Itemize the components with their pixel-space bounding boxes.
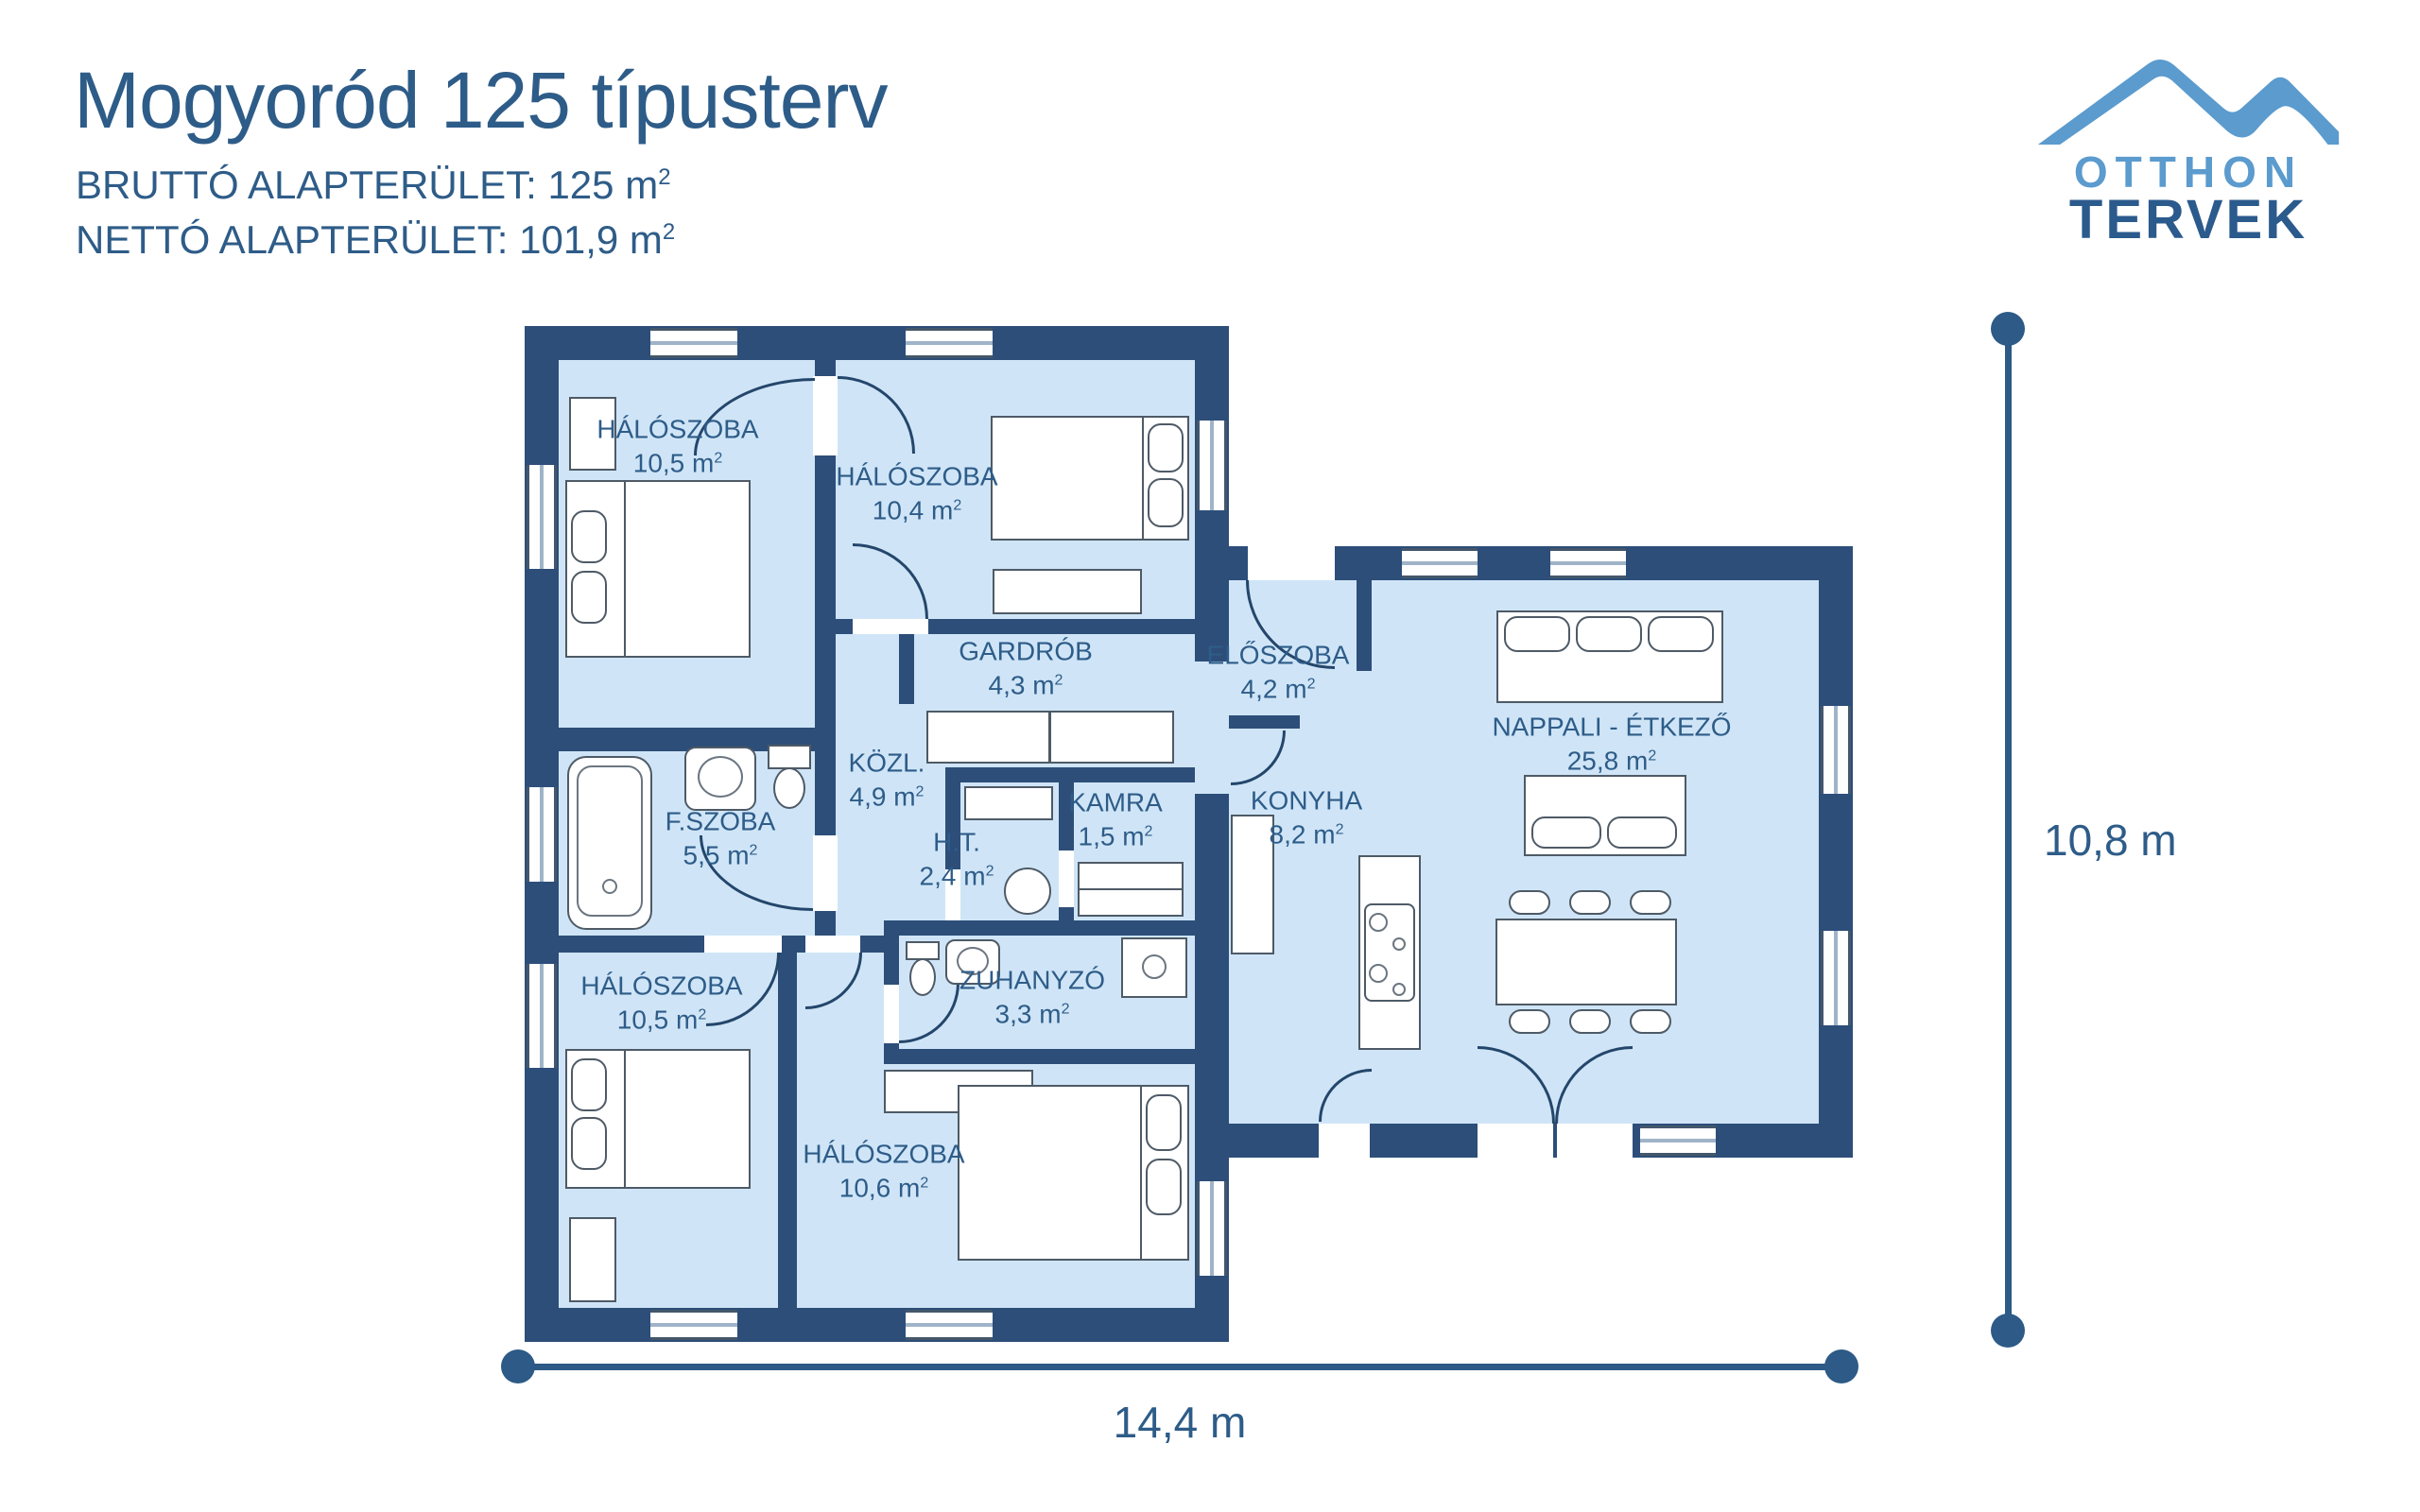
door-opening xyxy=(813,376,838,455)
height-dimension-line xyxy=(2005,329,2012,1331)
exterior-wall xyxy=(1195,794,1229,1124)
toilet-tank xyxy=(906,941,940,960)
dimension-endpoint xyxy=(1991,312,2025,346)
chair xyxy=(1630,1009,1671,1034)
burner xyxy=(1392,983,1406,996)
window xyxy=(1197,421,1227,510)
interior-wall xyxy=(778,953,797,1308)
water-heater xyxy=(1004,868,1051,915)
width-dimension-line xyxy=(518,1364,1841,1370)
height-dimension-label: 10,8 m xyxy=(2044,815,2177,866)
pillow xyxy=(1148,423,1184,472)
window xyxy=(906,328,993,358)
door-opening xyxy=(853,619,928,634)
chair xyxy=(1509,890,1550,915)
logo: OTTHON TERVEK xyxy=(2032,49,2344,251)
sofa-cushion xyxy=(1504,616,1570,652)
chair xyxy=(1630,890,1671,915)
dimension-endpoint xyxy=(501,1349,535,1383)
exterior-wall xyxy=(525,1308,1229,1342)
window xyxy=(1197,1181,1227,1276)
room-label: H.T.2,4 m2 xyxy=(920,826,994,895)
bed-divider-line xyxy=(624,1051,626,1187)
door-opening xyxy=(1059,850,1074,907)
door-opening xyxy=(813,835,838,911)
window xyxy=(650,1310,737,1340)
room-label: NAPPALI - ÉTKEZŐ25,8 m2 xyxy=(1492,711,1731,780)
window xyxy=(527,787,557,882)
sofa-cushion xyxy=(1607,816,1677,849)
dining-table xyxy=(1495,919,1677,1005)
width-dimension-label: 14,4 m xyxy=(1114,1397,1247,1448)
dimension-endpoint xyxy=(1824,1349,1858,1383)
room-label: ZUHANYZÓ3,3 m2 xyxy=(959,964,1105,1033)
burner xyxy=(1392,937,1406,951)
gross-area-sup: 2 xyxy=(658,164,670,190)
sofa-cushion xyxy=(1648,616,1714,652)
net-area-sup: 2 xyxy=(663,219,675,245)
shower-drain xyxy=(1142,954,1167,979)
room-label: KÖZL.4,9 m2 xyxy=(849,747,925,816)
window xyxy=(906,1310,993,1340)
window xyxy=(1550,548,1626,578)
bathtub-drain xyxy=(602,879,617,894)
pillow xyxy=(1146,1159,1182,1215)
interior-wall xyxy=(945,767,1195,782)
counter xyxy=(964,786,1053,820)
pillow xyxy=(1146,1094,1182,1151)
french-door-mullion xyxy=(1553,1124,1557,1158)
pillow xyxy=(571,571,607,624)
window xyxy=(650,328,737,358)
interior-wall xyxy=(1229,715,1300,729)
door-opening xyxy=(805,936,860,953)
room-label: ELŐSZOBA4,2 m2 xyxy=(1207,639,1350,708)
chair xyxy=(1569,890,1611,915)
toilet-bowl xyxy=(773,767,805,809)
terrace-door-opening xyxy=(1319,1124,1370,1158)
chair xyxy=(1569,1009,1611,1034)
gross-area-label: BRUTTÓ ALAPTERÜLET: 125 m xyxy=(76,163,658,207)
pillow xyxy=(571,1117,607,1170)
toilet-tank xyxy=(768,745,811,769)
burner xyxy=(1369,964,1388,983)
bed-divider-line xyxy=(624,482,626,656)
exterior-wall xyxy=(525,326,1229,360)
net-area-label: NETTÓ ALAPTERÜLET: 101,9 m xyxy=(76,217,663,262)
room-label: HÁLÓSZOBA10,4 m2 xyxy=(836,460,997,529)
floor-plan-page: Mogyoród 125 típusterv BRUTTÓ ALAPTERÜLE… xyxy=(0,0,2420,1512)
window xyxy=(1821,706,1851,794)
exterior-wall xyxy=(1819,546,1853,1158)
interior-wall xyxy=(899,1049,1195,1064)
pillow xyxy=(1148,478,1184,527)
dresser xyxy=(993,569,1142,614)
entrance-door-opening xyxy=(1248,546,1335,580)
net-area-text: NETTÓ ALAPTERÜLET: 101,9 m2 xyxy=(76,217,675,263)
burner xyxy=(1369,913,1388,932)
wardrobe xyxy=(569,1217,616,1302)
gross-area-text: BRUTTÓ ALAPTERÜLET: 125 m2 xyxy=(76,163,671,208)
dimension-endpoint xyxy=(1991,1314,2025,1348)
sofa-cushion xyxy=(1576,616,1642,652)
room-label: HÁLÓSZOBA10,6 m2 xyxy=(803,1138,964,1207)
window xyxy=(1402,548,1478,578)
logo-line2: TERVEK xyxy=(2032,188,2344,251)
sofa-cushion xyxy=(1531,816,1601,849)
room-label: KONYHA8,2 m2 xyxy=(1251,784,1362,853)
sink-basin xyxy=(698,756,743,798)
window xyxy=(1640,1125,1716,1156)
interior-wall xyxy=(1357,580,1372,671)
bed-divider-line xyxy=(1142,418,1144,539)
room-label: HÁLÓSZOBA10,5 m2 xyxy=(596,413,758,482)
interior-wall xyxy=(884,920,1195,936)
closet-divider xyxy=(1048,713,1051,762)
bathtub-inner xyxy=(577,765,643,917)
window xyxy=(1821,931,1851,1025)
pillow xyxy=(571,1058,607,1111)
mountain-logo-icon xyxy=(2032,49,2344,150)
window xyxy=(527,964,557,1068)
chair xyxy=(1509,1009,1550,1034)
shelf-line xyxy=(1080,888,1182,890)
bed-divider-line xyxy=(1140,1087,1142,1259)
interior-wall xyxy=(899,634,914,704)
pillow xyxy=(571,510,607,563)
page-title: Mogyoród 125 típusterv xyxy=(74,55,888,146)
door-opening xyxy=(704,936,782,953)
room-label: GARDRÓB4,3 m2 xyxy=(959,635,1093,704)
bed xyxy=(565,480,751,658)
room-label: HÁLÓSZOBA10,5 m2 xyxy=(580,970,742,1039)
room-label: KAMRA1,5 m2 xyxy=(1068,786,1163,855)
toilet-bowl xyxy=(909,958,936,996)
door-opening xyxy=(884,985,899,1043)
window xyxy=(527,465,557,569)
room-label: F.SZOBA5,5 m2 xyxy=(665,805,776,874)
